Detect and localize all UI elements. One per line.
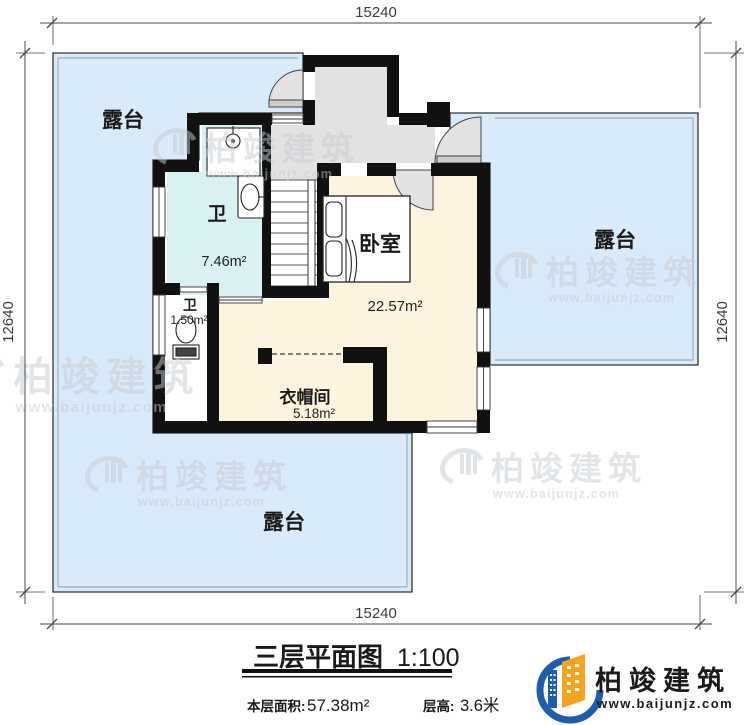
label-terrace-top-left: 露台 [102, 108, 144, 132]
door-jamb [431, 163, 433, 176]
bathroom-floor-2 [167, 172, 202, 298]
label-wc: 卫 [183, 297, 197, 313]
bed-pillow-1 [326, 202, 342, 237]
label-bedroom: 卧室 [359, 232, 401, 256]
logo-tower-blue-icon [548, 670, 557, 708]
wall [367, 163, 394, 176]
wall [477, 163, 490, 308]
drawing-title: 三层平面图 [253, 642, 383, 672]
wall [303, 55, 315, 72]
landing-gap [315, 113, 387, 125]
stair-handrail [308, 180, 315, 286]
logo-url-text: www.baijunjz.com [596, 696, 733, 711]
door-leaf-right-terrace [437, 156, 481, 163]
wall [187, 113, 272, 125]
logo-brand-text: 柏竣建筑 [595, 665, 731, 696]
label-terrace-bottom: 露台 [263, 510, 305, 534]
wall [153, 421, 427, 433]
wall [258, 348, 272, 364]
area-wc: 1.50m² [170, 313, 207, 327]
door-leaf-top-terrace [269, 100, 303, 107]
dim-left: 12640 [0, 301, 17, 343]
dim-bottom: 15240 [355, 605, 397, 622]
logo-tower-orange-icon [562, 654, 585, 708]
bed-pillow-2 [326, 241, 342, 276]
wall [387, 55, 399, 117]
wall [207, 283, 219, 421]
floor-height-value: 3.6米 [460, 696, 499, 715]
area-cloakroom: 5.18m² [293, 406, 336, 421]
wall [303, 100, 315, 125]
vanity-basin [241, 184, 259, 210]
drawing-scale: 1:100 [397, 644, 460, 672]
opening-wc [180, 287, 207, 292]
title-underline-thick [242, 669, 452, 673]
floor-area-label: 本层面积: [247, 698, 306, 714]
door-jamb [394, 163, 396, 176]
wall [477, 352, 490, 367]
wall [153, 172, 165, 187]
label-cloakroom: 衣帽间 [280, 387, 331, 407]
floor-area-value: 57.38m² [307, 696, 370, 715]
wall [165, 283, 180, 295]
wall-pier [427, 102, 450, 127]
wall [477, 421, 490, 433]
floor-plan-drawing: 柏竣建筑 www.baijunjz.com [0, 0, 750, 725]
wall [399, 113, 427, 125]
title-block: 三层平面图 1:100 本层面积: 57.38m² 层高: 3.6米 [242, 642, 499, 715]
wall [153, 237, 165, 295]
wall-bulkhead-top [303, 55, 399, 67]
wall [373, 347, 387, 421]
company-logo: 柏竣建筑 www.baijunjz.com [540, 654, 733, 720]
label-terrace-right: 露台 [594, 228, 636, 252]
area-bathroom: 7.46m² [201, 254, 246, 270]
title-underline-thin [242, 676, 452, 678]
dim-right: 12640 [714, 301, 731, 343]
dim-top: 15240 [355, 4, 397, 21]
wall [433, 163, 477, 176]
area-bedroom: 22.57m² [367, 298, 422, 315]
label-bathroom: 卫 [207, 204, 226, 225]
floor-height-label: 层高: [423, 698, 455, 714]
